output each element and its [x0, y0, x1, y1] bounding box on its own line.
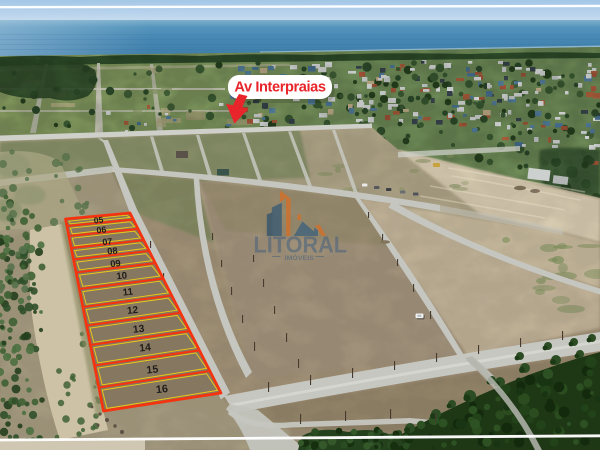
svg-text:06: 06	[96, 224, 107, 235]
svg-text:LITORAL: LITORAL	[254, 232, 348, 258]
svg-text:12: 12	[127, 305, 140, 317]
svg-text:Av Interpraias: Av Interpraias	[234, 80, 325, 96]
svg-text:09: 09	[110, 257, 122, 269]
svg-text:IMÓVEIS: IMÓVEIS	[285, 253, 315, 262]
svg-text:16: 16	[155, 383, 168, 396]
svg-text:10: 10	[116, 270, 128, 282]
svg-text:13: 13	[132, 324, 145, 336]
svg-text:15: 15	[146, 363, 159, 376]
svg-text:14: 14	[139, 341, 152, 354]
svg-text:11: 11	[122, 287, 134, 299]
svg-text:08: 08	[107, 246, 118, 257]
